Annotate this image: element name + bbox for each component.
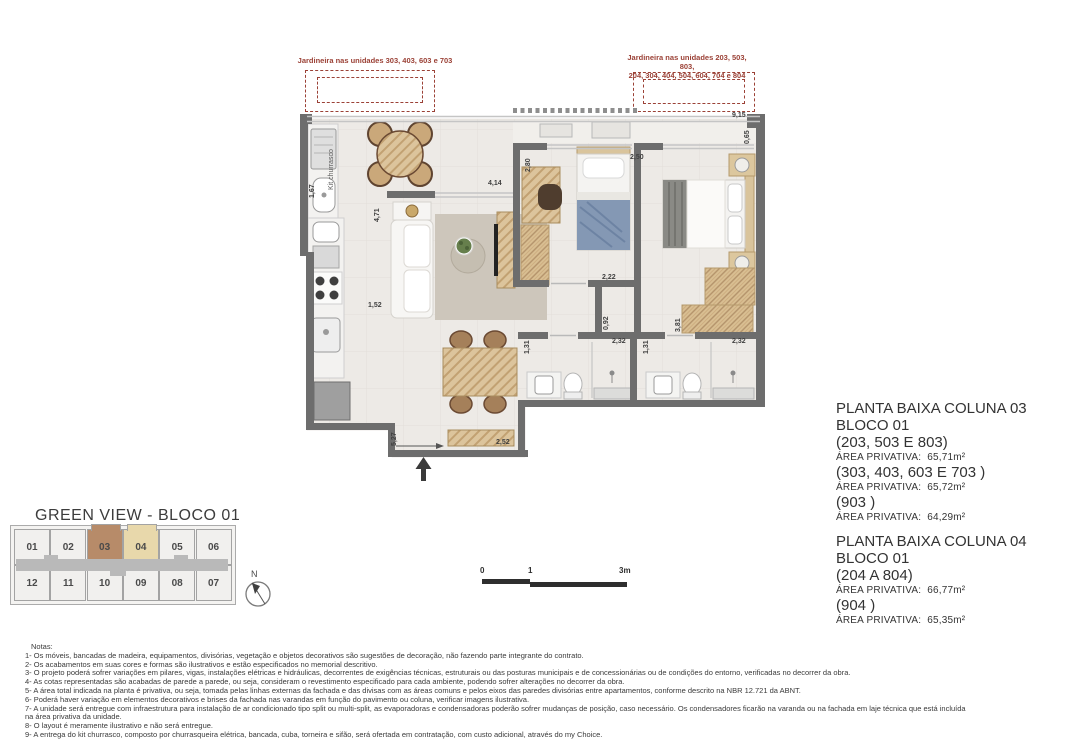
info-area: ÁREA PRIVATIVA:66,77m² [836,584,1080,597]
keyplan-corridor-bump [174,555,188,561]
info-area: ÁREA PRIVATIVA:64,29m² [836,511,1080,524]
scale-label-1: 1 [528,566,532,575]
info-area: ÁREA PRIVATIVA:65,71m² [836,451,1080,464]
wardrobe [521,225,549,285]
info-subtitle: BLOCO 01 [836,550,1080,567]
fridge [314,382,350,420]
info-units: (203, 503 E 803) [836,434,1080,451]
scale-bar: 0 1 3m [479,566,639,592]
keyplan-corridor-bump [44,555,58,561]
keyplan-unit-notch [91,524,121,531]
info-units: (303, 403, 603 E 703 ) [836,464,1080,481]
info-units: (204 A 804) [836,567,1080,584]
area-value: 65,35m² [927,615,965,626]
area-label: ÁREA PRIVATIVA: [836,482,921,493]
info-title: PLANTA BAIXA COLUNA 03 [836,400,1080,417]
info-units: (903 ) [836,494,1080,511]
scale-label-3m: 3m [619,566,631,575]
wardrobe [682,305,753,333]
area-label: ÁREA PRIVATIVA: [836,585,921,596]
kit-churrasco-counter [308,124,338,232]
jardineira-left-label: Jardineira nas unidades 303, 403, 603 e … [295,56,455,65]
kitchen-counter [308,218,350,420]
notes: Notas: 1- Os móveis, bancadas de madeira… [25,643,970,740]
single-bed [577,147,630,250]
info-area: ÁREA PRIVATIVA:65,72m² [836,481,1080,494]
scale-label-0: 0 [480,566,484,575]
area-label: ÁREA PRIVATIVA: [836,452,921,463]
tv-console [494,212,515,288]
area-label: ÁREA PRIVATIVA: [836,615,921,626]
info-subtitle: BLOCO 01 [836,417,1080,434]
wardrobe [705,268,755,305]
plan-info-panel: PLANTA BAIXA COLUNA 03 BLOCO 01 (203, 50… [836,400,1080,636]
notes-list: 1- Os móveis, bancadas de madeira, equip… [25,652,970,740]
north-compass: N [238,566,278,614]
north-compass-svg: N [238,566,278,614]
scale-segment [530,582,627,587]
keyplan: 010203040506121110090807 [14,529,232,601]
keyplan-corridor-bump [110,569,126,576]
area-value: 64,29m² [927,512,965,523]
area-label: ÁREA PRIVATIVA: [836,512,921,523]
entry-arrow-icon [416,457,432,481]
area-value: 66,77m² [927,585,965,596]
note-item: 9- A entrega do kit churrasco, composto … [25,731,970,740]
keyplan-title: GREEN VIEW - BLOCO 01 [35,507,240,525]
scale-segment [482,579,530,584]
keyplan-unit-notch [127,524,157,531]
info-area: ÁREA PRIVATIVA:65,35m² [836,614,1080,627]
info-units: (904 ) [836,597,1080,614]
jardineira-right-label-line1: Jardineira nas unidades 203, 503, 803, [620,53,754,71]
info-block-coluna-04: PLANTA BAIXA COLUNA 04 BLOCO 01 (204 A 8… [836,533,1080,627]
info-title: PLANTA BAIXA COLUNA 04 [836,533,1080,550]
sideboard [448,430,514,446]
area-value: 65,71m² [927,452,965,463]
area-value: 65,72m² [927,482,965,493]
info-block-coluna-03: PLANTA BAIXA COLUNA 03 BLOCO 01 (203, 50… [836,400,1080,524]
condenser-unit [540,124,572,137]
floor-plan [292,92,772,482]
varanda-round-table [368,122,432,186]
double-bed [663,176,754,252]
note-item: 7- A unidade será entregue com infraestr… [25,705,970,723]
desk [522,167,562,223]
page: { "jardineiras": { "left": {"label": "Ja… [0,0,1080,748]
table-lamp [406,205,418,217]
condenser-unit [592,122,630,138]
sofa [391,202,433,318]
north-label: N [251,569,258,579]
floor-plan-svg [292,92,772,482]
